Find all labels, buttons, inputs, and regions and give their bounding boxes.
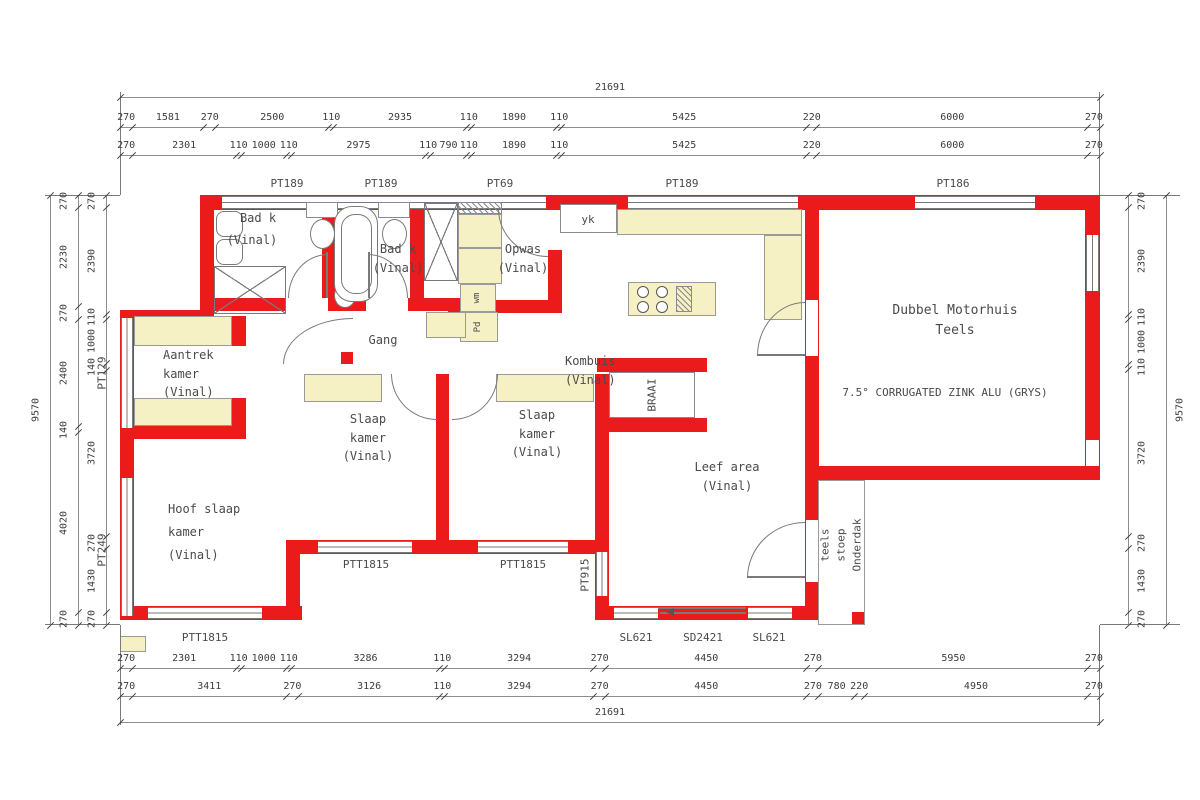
room-label-bad-k-2: Bad k (Vinal) [373,240,424,277]
dimension-value: 2301 [172,653,196,664]
roof-note: 7.5° CORRUGATED ZINK ALU (GRYS) [842,384,1047,401]
dimension-value: 110 [230,653,248,664]
room-label-garage: Dubbel Motorhuis Teels [892,301,1017,341]
drawing-line [368,252,370,298]
dimension-value: 5425 [672,112,696,123]
dimension-value: 110 [460,140,478,151]
window-symbol [748,607,792,619]
dimension-value: 270 [1137,610,1148,628]
door-swing-arc [283,318,353,364]
room-label-opwas: Opwas (Vinal) [498,240,549,277]
dimension-value: 270 [1085,140,1103,151]
wall-opening [806,300,818,356]
door-swing-arc [452,374,498,420]
dimension-value: 1000 [1137,330,1148,354]
fixture-box [378,202,410,218]
dimension-value: 110 [280,653,298,664]
dimension-value: 140 [87,358,98,376]
dimension-value: 270 [591,681,609,692]
dimension-rail [120,668,1100,669]
dimension-value: 270 [1085,112,1103,123]
dimension-value: 270 [1085,681,1103,692]
dimension-value: 1890 [502,112,526,123]
dimension-value: 3286 [353,653,377,664]
dimension-value: 110 [550,112,568,123]
window-label-ptt1815-2: PTT1815 [343,556,389,573]
dimension-value: 270 [283,681,301,692]
room-label-gang: Gang [369,331,398,350]
hatched-fixture [458,202,502,214]
wall-segment [818,466,1100,480]
built-in-cupboard [458,214,502,248]
dimension-value: 1000 [87,329,98,353]
dimension-value: 270 [87,192,98,210]
dimension-value: 220 [803,112,821,123]
dimension-value: 270 [59,192,70,210]
door-label-sl621-1: SL621 [619,629,652,646]
dimension-value: 6000 [940,140,964,151]
window-label-pt189-1: PT189 [270,175,303,192]
dimension-value: 270 [591,653,609,664]
wall-segment [597,418,707,432]
wall-opening [451,360,497,374]
room-label-leef-area: Leef area (Vinal) [694,458,759,495]
drawing-line [120,625,121,725]
dimension-value: 1581 [156,112,180,123]
stove-burner [637,286,649,298]
wall-segment [548,250,562,313]
dimension-value: 110 [230,140,248,151]
built-in-cupboard [120,636,146,652]
dimension-value: 110 [280,140,298,151]
hatched-fixture [676,286,692,312]
dimension-value: 1890 [502,140,526,151]
room-label-slaap-2: Slaap kamer (Vinal) [343,410,394,466]
stove-burner [656,301,668,313]
dimension-value: 110 [460,112,478,123]
drawing-line [1099,625,1100,725]
dimension-value: 110 [1137,308,1148,326]
built-in-cupboard [458,248,502,284]
dimension-value: 3126 [357,681,381,692]
stoep-label-teels: teels [816,528,833,561]
dimension-value: 21691 [595,82,625,93]
dimension-value: 270 [1137,192,1148,210]
stoep-label-stoep: stoep [832,528,849,561]
dimension-value: 9570 [1175,398,1186,422]
dimension-rail [120,97,1100,98]
dimension-value: 2230 [59,245,70,269]
window-symbol [121,478,133,616]
dimension-value: 1430 [87,569,98,593]
dimension-value: 270 [87,610,98,628]
dimension-value: 270 [59,610,70,628]
appliance-label-wm: wm [471,293,485,304]
stove-burner [656,286,668,298]
appliance-label-pd: Pd [472,322,486,333]
built-in-cupboard [617,209,802,235]
dimension-value: 1000 [252,653,276,664]
dimension-value: 110 [322,112,340,123]
dimension-value: 3720 [1137,441,1148,465]
wall-opening [391,360,437,374]
dimension-value: 270 [804,653,822,664]
dimension-value: 270 [117,112,135,123]
shower-or-cupboard [424,203,458,281]
dimension-value: 270 [1085,653,1103,664]
dimension-rail [1166,195,1167,625]
dimension-value: 110 [87,308,98,326]
dimension-value: 220 [850,681,868,692]
wall-opening [286,298,328,311]
dimension-value: 270 [87,534,98,552]
dimension-value: 3294 [507,681,531,692]
dimension-value: 2935 [388,112,412,123]
dimension-value: 270 [1137,534,1148,552]
dimension-value: 780 [828,681,846,692]
dimension-value: 3294 [507,653,531,664]
built-in-cupboard [304,374,382,402]
drawing-line [45,195,120,196]
room-label-bad-k-1: Bad k [240,209,276,228]
dimension-rail [78,195,79,625]
window-symbol [318,541,412,553]
door-label-sl621-2: SL621 [752,629,785,646]
dimension-value: 9570 [31,398,42,422]
wall-segment [134,426,246,439]
dimension-value: 21691 [595,707,625,718]
dimension-rail [120,722,1100,723]
window-label-pt69: PT69 [487,175,514,192]
dimension-rail [120,696,1100,697]
dimension-value: 270 [117,681,135,692]
dimension-value: 270 [804,681,822,692]
dimension-value: 2400 [59,361,70,385]
fixture-box [306,202,338,218]
appliance-label-yk: yk [581,211,594,228]
window-label-ptt1815-1: PTT1815 [182,629,228,646]
dimension-value: 1000 [252,140,276,151]
wall-segment [200,195,214,310]
wall-segment [595,374,609,540]
dimension-value: 270 [117,140,135,151]
shower-or-cupboard [214,266,286,314]
dimension-value: 6000 [940,112,964,123]
dimension-value: 2390 [87,249,98,273]
dimension-value: 4450 [694,681,718,692]
room-label-hoof-slaap: Hoof slaap kamer (Vinal) [168,498,240,566]
dimension-value: 4020 [59,511,70,535]
drawing-line [757,354,805,356]
dimension-rail [50,195,51,625]
wall-segment [436,374,449,540]
dimension-value: 2500 [260,112,284,123]
window-symbol [614,607,658,619]
dimension-value: 270 [201,112,219,123]
dimension-value: 5950 [941,653,965,664]
floor-plan: Bad k(Vinal)Bad k (Vinal)Opwas (Vinal)yk… [0,0,1200,800]
door-swing-arc [747,522,805,578]
window-symbol [478,541,568,553]
wall-opening [366,298,408,311]
dimension-value: 3411 [197,681,221,692]
sliding-door-arrow [666,608,674,616]
dimension-value: 110 [433,653,451,664]
window-symbol [915,196,1035,209]
window-symbol [148,607,262,619]
dimension-value: 110 [550,140,568,151]
window-label-pt186: PT186 [936,175,969,192]
wall-opening [1086,440,1099,466]
dimension-rail [120,127,1100,128]
window-label-ptt1815-3: PTT1815 [500,556,546,573]
dimension-rail [120,155,1100,156]
room-label-kombuis: Kombuis (Vinal) [565,352,616,389]
dimension-value: 4450 [694,653,718,664]
fixture-label-braai: BRAAI [643,378,660,411]
drawing-line [326,252,328,298]
dimension-value: 4950 [964,681,988,692]
drawing-line [747,576,805,578]
stoep-label-onderdak: Onderdak [848,519,865,572]
dimension-value: 110 [433,681,451,692]
built-in-cupboard [426,312,466,338]
window-symbol [596,552,608,596]
dimension-value: 790 [439,140,457,151]
room-label-aantrek: Aantrek kamer (Vinal) [163,346,214,402]
dimension-value: 3720 [87,441,98,465]
window-symbol [121,318,133,428]
door-label-sd2421: SD2421 [683,629,723,646]
dimension-value: 1430 [1137,569,1148,593]
room-label-slaap-3: Slaap kamer (Vinal) [512,406,563,462]
dimension-value: 2301 [172,140,196,151]
dimension-value: 110 [1137,358,1148,376]
dimension-value: 2390 [1137,249,1148,273]
dimension-value: 220 [803,140,821,151]
window-label-pt189-2: PT189 [364,175,397,192]
stove-burner [637,301,649,313]
dimension-value: 270 [59,304,70,322]
dimension-value: 2975 [346,140,370,151]
dimension-rail [106,195,107,625]
drawing-line [45,624,120,625]
dimension-value: 270 [117,653,135,664]
built-in-cupboard [134,316,232,346]
dimension-value: 5425 [672,140,696,151]
dimension-value: 140 [59,421,70,439]
window-symbol [628,196,798,209]
door-swing-arc [391,374,437,420]
door-swing-arc [288,254,328,298]
wall-segment [232,398,246,426]
sanitary-fixture [310,219,335,249]
room-label-bad-k-1-floor: (Vinal) [227,231,278,250]
window-label-pt189-3: PT189 [665,175,698,192]
window-symbol [1086,235,1099,291]
dimension-rail [1128,195,1129,625]
window-label-pt915: PT915 [576,558,593,591]
dimension-value: 110 [419,140,437,151]
built-in-cupboard [134,398,232,426]
wall-segment [232,316,246,346]
